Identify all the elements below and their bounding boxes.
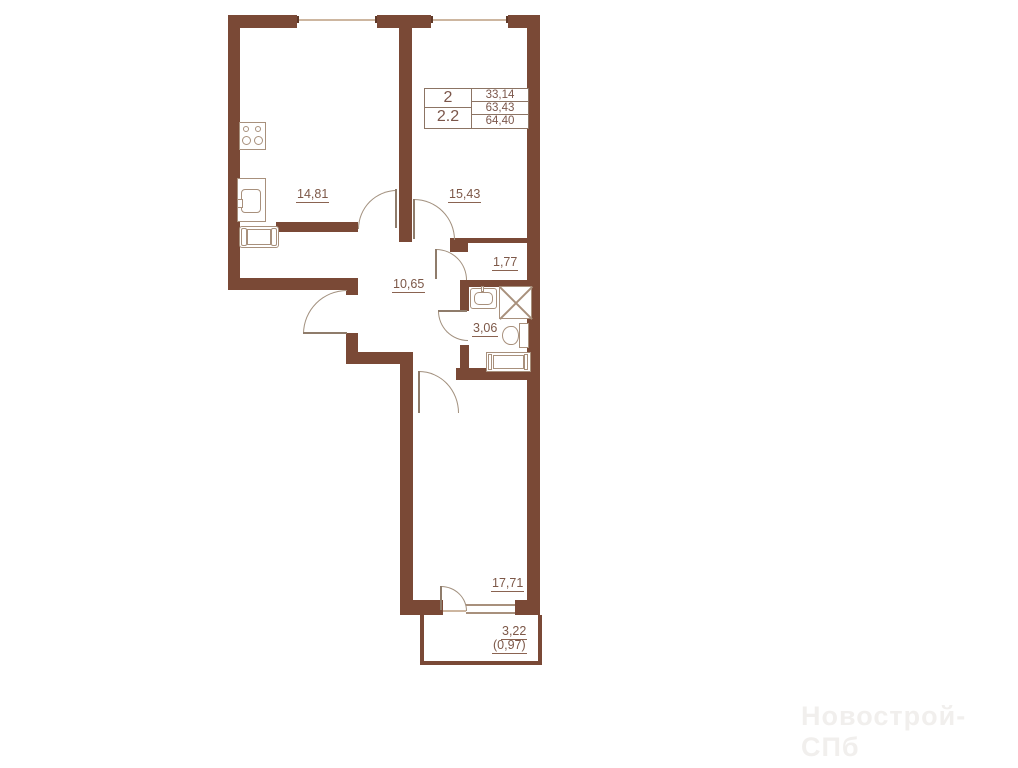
wall-balcony-bottom [420,661,542,665]
toilet-bowl-icon [502,326,519,345]
bathroom-area-label: 3,06 [472,322,498,337]
wall-bath-left-lower [460,345,469,370]
bedroom-door-arc [419,371,459,413]
small-hall-door-arc [436,249,467,280]
stove-burner [242,136,251,145]
bathroom-sink-basin [474,292,493,305]
balcony-window [466,604,515,614]
kitchen-window [297,19,377,21]
wall-entry-jamb [346,290,358,295]
washing-machine-bar [488,354,492,370]
entrance-door-leaf [303,332,347,334]
wall-bath-left-upper [460,287,469,311]
window-tick [297,16,299,23]
balcony-door-arc [441,586,467,611]
wall-bedroom-bottom-right [515,600,540,615]
stove-burner [254,136,263,145]
wall-bedroom-left [400,352,413,615]
wall-kitchen-living-divider [399,15,412,242]
wall-left [228,15,240,290]
wall-bedroom-bottom-left [400,600,443,615]
kitchen-door-leaf [395,189,397,228]
watermark: Новострой-СПб [801,701,1018,763]
apartment-rooms-count: 2 [425,89,471,108]
window-tick [375,16,377,23]
wall-hall-jamb [450,243,468,252]
stove-burner [255,126,261,132]
bathroom-faucet-icon [481,286,484,292]
washing-machine-bar [524,354,528,370]
kitchen-faucet-icon [237,199,243,208]
apartment-info-table: 2 2.2 33,14 63,43 64,40 [424,88,529,129]
washing-machine-inner [493,355,524,369]
kitchen-door-arc [358,190,397,229]
window-tick [431,16,433,23]
wall-balcony-right [538,615,542,665]
apartment-areas-column: 33,14 63,43 64,40 [472,89,528,128]
small-hall-area-label: 1,77 [492,256,518,271]
apartment-type-code: 2.2 [425,108,471,126]
floor-plan: 14,81 15,43 1,77 10,65 3,06 17,71 3,22 (… [0,0,1018,768]
wall-balcony-left [420,615,424,665]
window-tick [506,16,508,23]
wall-kitchen-bottom [276,222,358,232]
living-window [431,19,508,21]
sofa-seat [247,229,271,245]
bedroom-area-label: 17,71 [491,577,524,592]
sofa-armrest [271,228,277,246]
living-door-leaf [413,199,415,239]
apartment-type-column: 2 2.2 [425,89,472,128]
corridor-area-label: 10,65 [392,278,425,293]
kitchen-area-label: 14,81 [296,188,329,203]
kitchen-sink-icon [241,189,261,213]
wall-entry-top [228,278,358,290]
area-without-balcony-value: 63,43 [472,102,528,115]
bathroom-door-leaf [438,310,467,312]
balcony-door-leaf [440,586,442,610]
stove-burner [243,126,249,132]
living-area-label: 15,43 [448,188,481,203]
entrance-door-arc [303,290,347,334]
small-hall-door-leaf [435,249,437,279]
living-door-arc [414,199,455,240]
toilet-tank [519,323,529,348]
bedroom-door-leaf [418,371,420,413]
balcony-reduced-area-label: (0,97) [492,639,527,654]
living-space-value: 33,14 [472,89,528,102]
bathroom-door-arc [438,311,468,341]
total-area-value: 64,40 [472,115,528,127]
